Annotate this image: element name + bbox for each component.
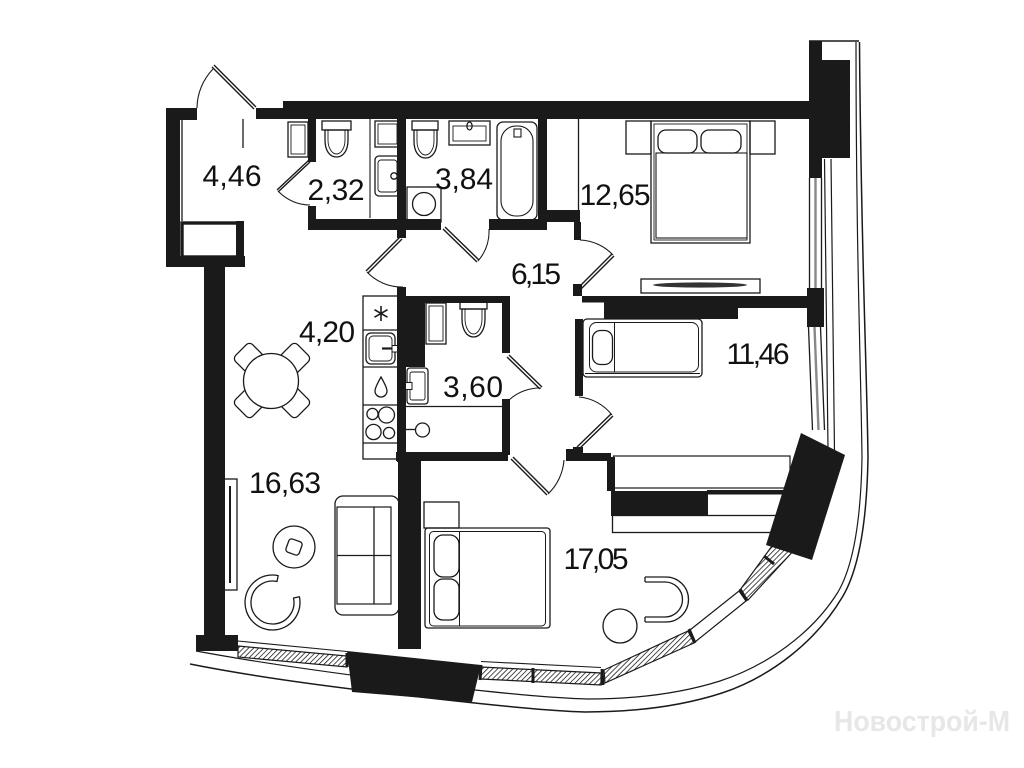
- svg-text:12,65: 12,65: [580, 179, 651, 212]
- svg-text:Новострой-М: Новострой-М: [834, 706, 1010, 738]
- svg-text:16,63: 16,63: [249, 467, 321, 500]
- svg-text:2,32: 2,32: [308, 174, 365, 207]
- svg-text:4,46: 4,46: [203, 160, 262, 193]
- svg-text:4,20: 4,20: [299, 316, 355, 349]
- svg-text:6,15: 6,15: [511, 258, 561, 291]
- svg-text:3,60: 3,60: [443, 371, 503, 404]
- svg-text:11,46: 11,46: [727, 338, 790, 371]
- svg-text:3,84: 3,84: [435, 163, 493, 196]
- svg-text:17,05: 17,05: [564, 543, 629, 576]
